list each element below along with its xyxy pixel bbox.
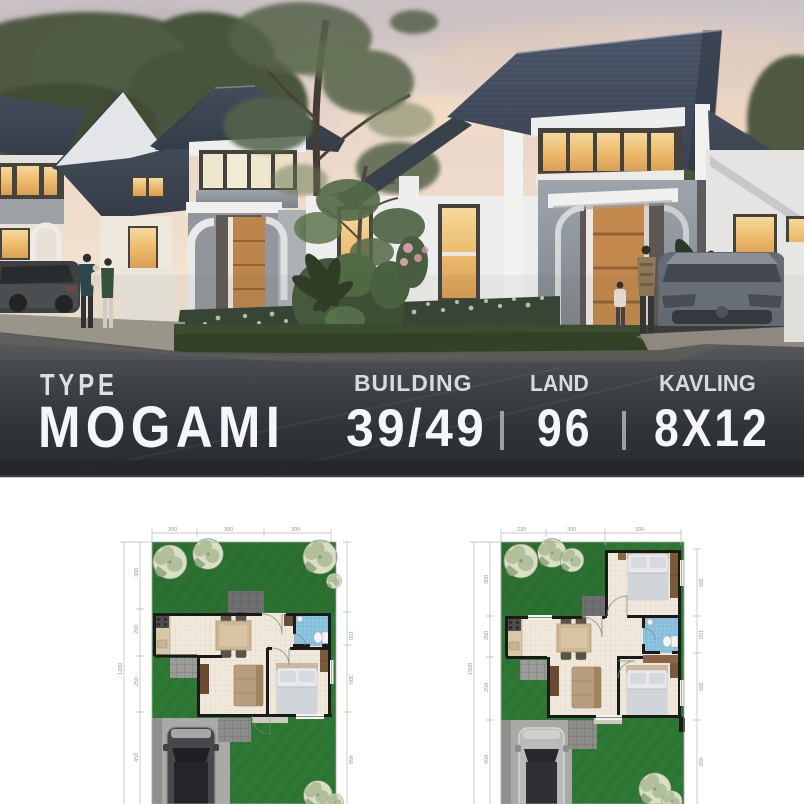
svg-text:200: 200 bbox=[168, 527, 177, 533]
svg-text:150: 150 bbox=[347, 631, 353, 640]
svg-text:450: 450 bbox=[697, 757, 703, 766]
svg-text:1500: 1500 bbox=[468, 663, 474, 675]
svg-text:200: 200 bbox=[484, 631, 490, 640]
svg-text:300: 300 bbox=[697, 682, 703, 691]
svg-text:150: 150 bbox=[697, 630, 703, 639]
svg-text:300: 300 bbox=[697, 578, 703, 587]
svg-text:200: 200 bbox=[134, 625, 140, 634]
svg-text:300: 300 bbox=[134, 568, 140, 577]
svg-text:250: 250 bbox=[484, 683, 490, 692]
svg-text:300: 300 bbox=[347, 675, 353, 684]
svg-text:250: 250 bbox=[134, 677, 140, 686]
svg-text:330: 330 bbox=[635, 527, 644, 533]
svg-text:300: 300 bbox=[567, 527, 576, 533]
svg-text:450: 450 bbox=[484, 755, 490, 764]
svg-text:1200: 1200 bbox=[118, 663, 124, 675]
svg-text:230: 230 bbox=[517, 527, 526, 533]
svg-text:300: 300 bbox=[484, 575, 490, 584]
svg-text:450: 450 bbox=[347, 755, 353, 764]
svg-text:300: 300 bbox=[291, 527, 300, 533]
svg-text:450: 450 bbox=[134, 753, 140, 762]
svg-text:300: 300 bbox=[224, 527, 233, 533]
